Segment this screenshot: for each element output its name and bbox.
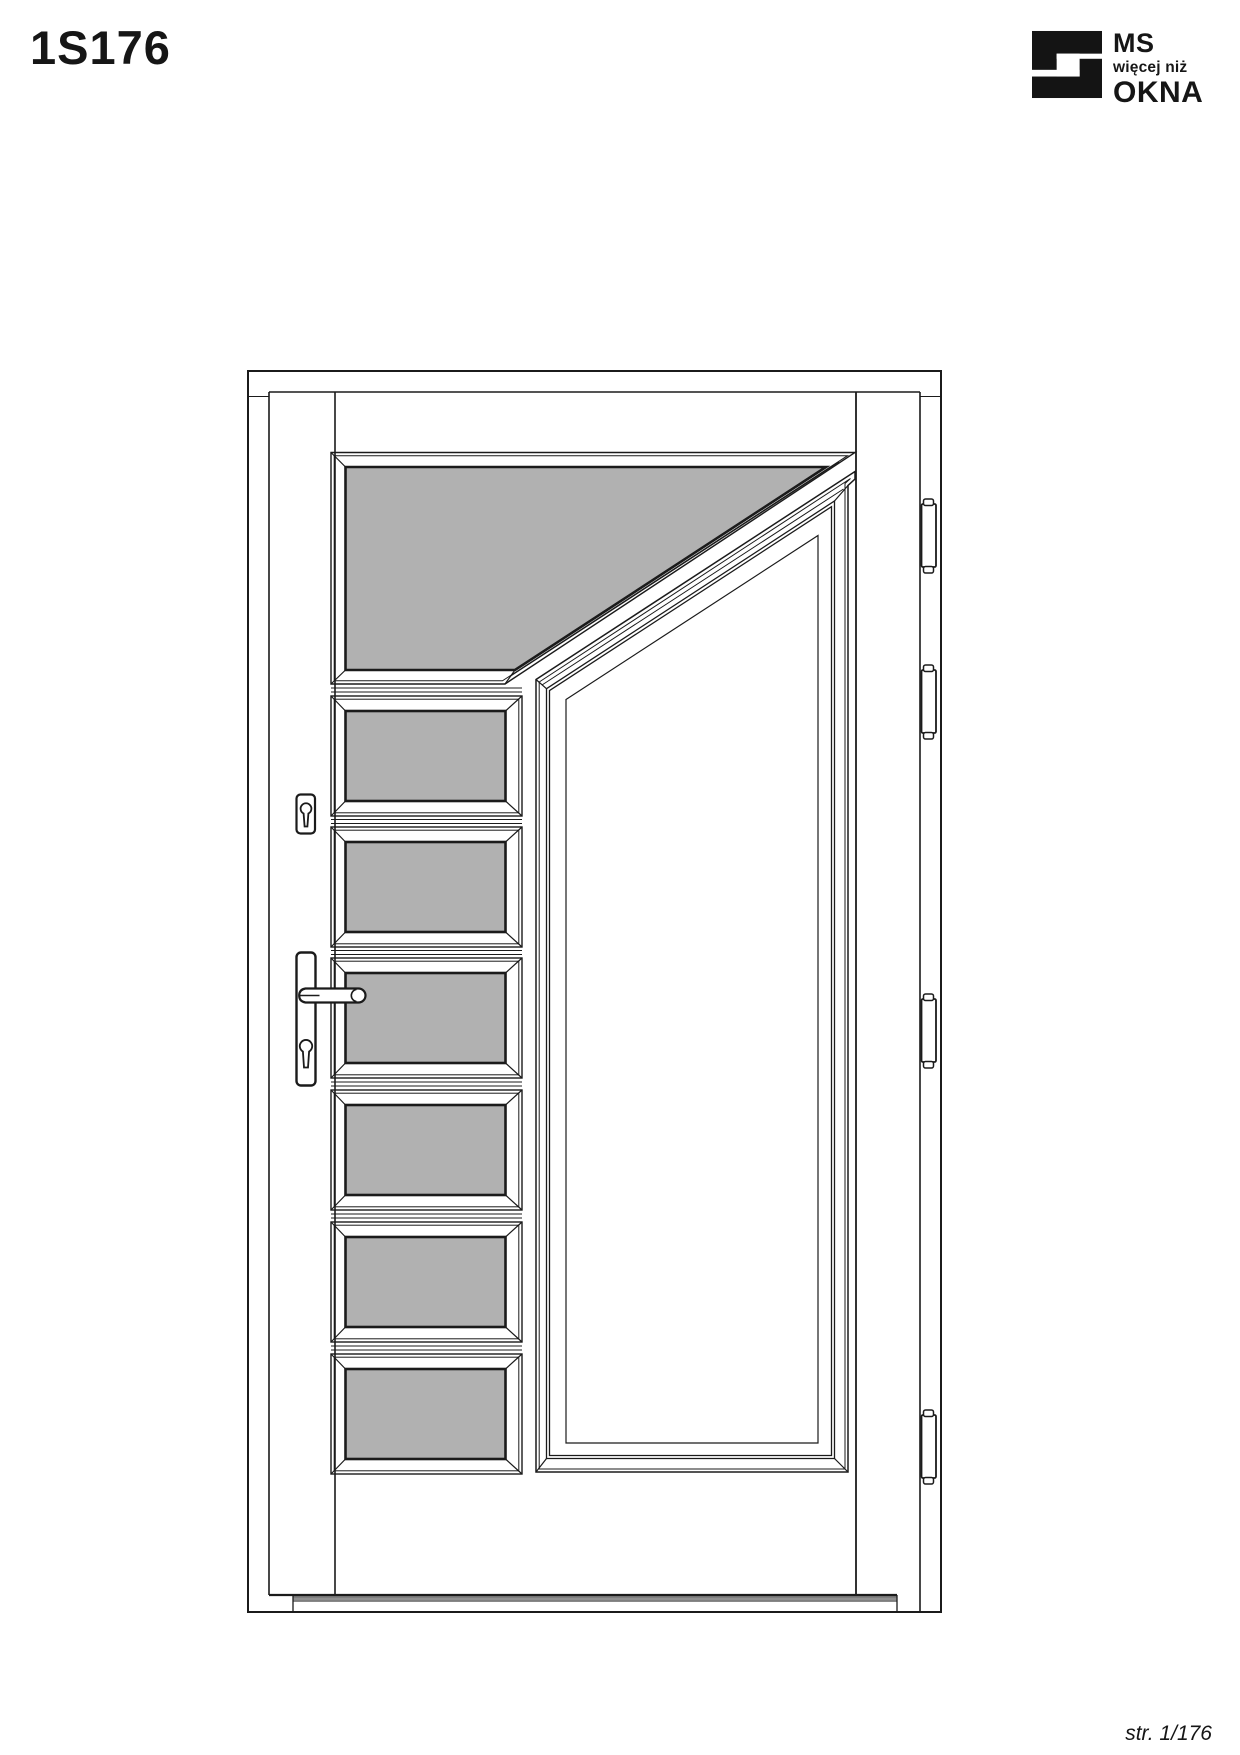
hinge [922,665,937,739]
glass-panel [331,1354,522,1474]
glass-panel-triangle [331,453,855,685]
glass-panel [331,827,522,947]
door-technical-drawing [0,0,1240,1755]
hinge [922,499,937,573]
page-footer: str. 1/176 [1125,1722,1212,1746]
glass-panel [331,1222,522,1342]
threshold [269,1595,897,1612]
hinge [922,1410,937,1484]
hinge [922,994,937,1068]
glass-panel [331,958,522,1078]
glass-panel [331,1090,522,1210]
hinges [922,499,937,1484]
handle-lever [299,989,365,1003]
glass-panel-column [331,688,522,1474]
glass-panel [331,696,522,816]
escutcheon-upper [297,795,316,834]
